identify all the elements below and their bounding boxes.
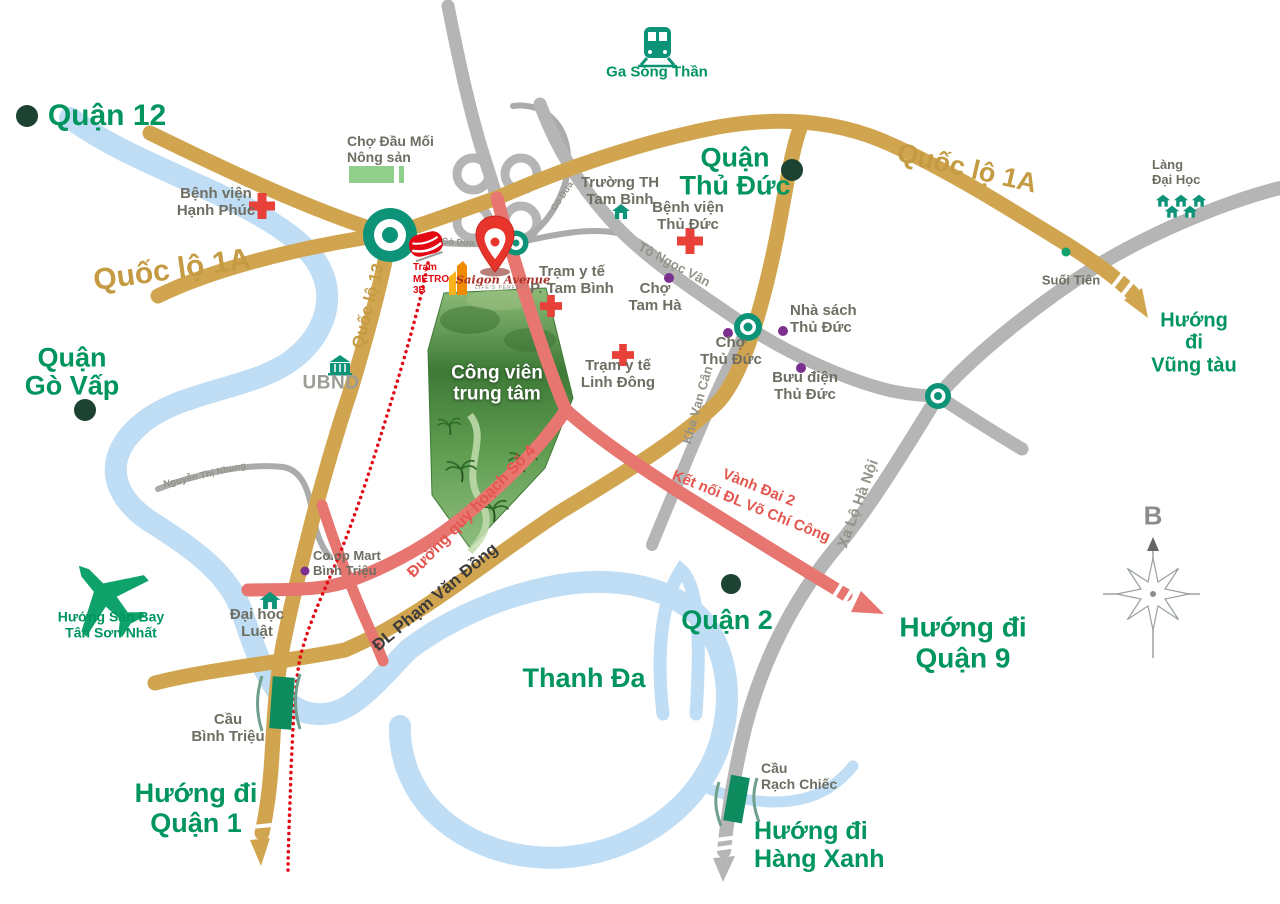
arrow-quan-9: [851, 591, 884, 614]
map-canvas: [0, 0, 1280, 904]
railway-station-icon: [638, 27, 677, 66]
suoi-tien-dot-icon: [1062, 248, 1071, 257]
poi-dot-icon: [778, 326, 788, 336]
hospital-cross-icon: [677, 228, 703, 254]
roundabout-icon: [363, 208, 417, 262]
river-rach-chiec: [700, 766, 853, 802]
poi-dot-icon: [796, 363, 806, 373]
location-map: Quận 12 Quận Thủ Đức Quận Gò Vấp Quận 2 …: [0, 0, 1280, 904]
poi-dot-icon: [664, 273, 674, 283]
bridge-icon: [269, 676, 295, 729]
roundabout-icon: [734, 313, 762, 341]
compass-rose-icon: [1103, 537, 1200, 658]
district-dot-icon: [74, 399, 96, 421]
roundabout-icon: [925, 383, 951, 409]
arrow-quan-1: [250, 838, 270, 866]
project-building-icon: [449, 261, 467, 295]
road-ql1a: [150, 121, 1132, 293]
district-dot-icon: [16, 105, 38, 127]
airplane-icon: [48, 538, 165, 655]
ubnd-building-icon: [328, 355, 352, 376]
district-dot-icon: [781, 159, 803, 181]
poi-dot-icon: [723, 328, 733, 338]
location-pin-icon: [476, 216, 514, 277]
river-thanh-da-loop: [400, 582, 727, 858]
road-xa-lo-ha-noi: [724, 188, 1280, 851]
road-spur-southeast: [938, 396, 1022, 449]
market-icon: [349, 166, 404, 183]
arrow-hang-xanh: [713, 856, 735, 882]
district-dot-icon: [721, 574, 741, 594]
poi-dot-icon: [301, 567, 310, 576]
clinic-cross-icon: [612, 344, 634, 366]
north-arrow-icon: [1147, 537, 1159, 551]
